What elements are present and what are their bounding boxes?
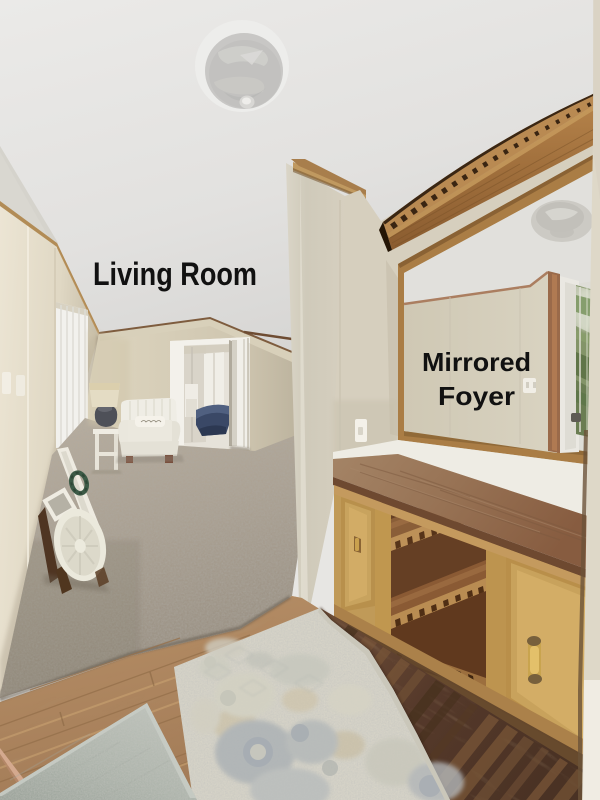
svg-text:Foyer: Foyer — [438, 381, 515, 411]
svg-text:Living Room: Living Room — [93, 256, 257, 292]
svg-text:Mirrored: Mirrored — [422, 347, 531, 377]
